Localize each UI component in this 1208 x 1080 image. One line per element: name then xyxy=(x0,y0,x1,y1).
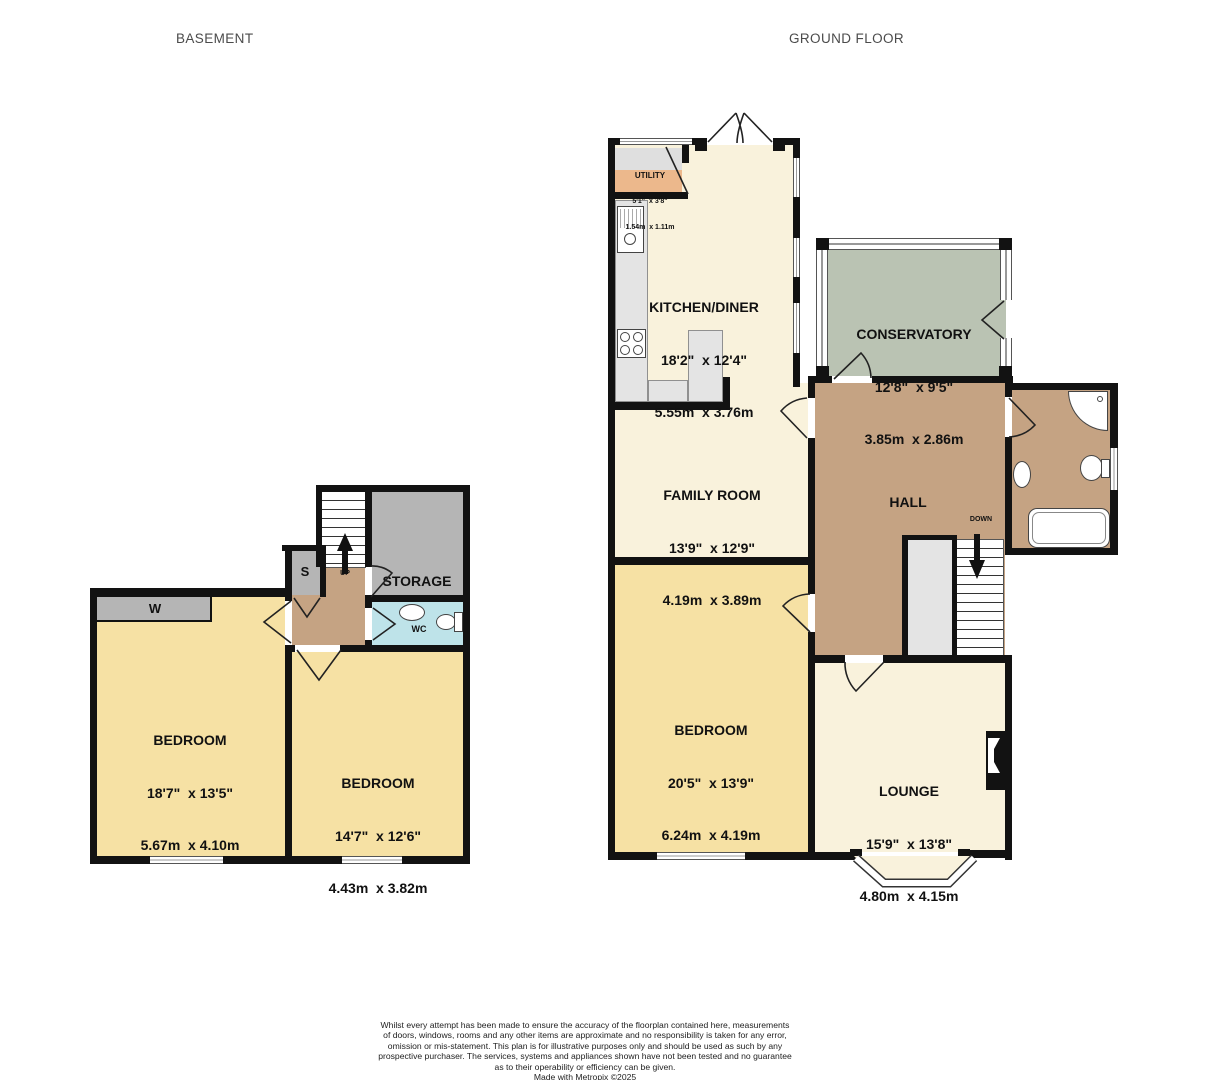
room-name: BEDROOM xyxy=(141,732,240,750)
room-name: BEDROOM xyxy=(329,775,428,793)
disclaimer-credit: Made with Metropix ©2025 xyxy=(365,1072,805,1080)
wall-segment xyxy=(1005,383,1118,390)
disclaimer-line: as to their operability or efficiency ca… xyxy=(365,1062,805,1072)
stairs-down xyxy=(957,540,1003,655)
wall-segment xyxy=(883,655,1012,663)
room-name: BEDROOM xyxy=(662,722,761,740)
wall-segment xyxy=(902,535,908,655)
room-name: FAMILY ROOM xyxy=(663,487,762,505)
room-label-basement-bedroom-2: BEDROOM 14'7" x 12'6" 4.43m x 3.82m xyxy=(329,740,428,933)
wall-segment xyxy=(1005,437,1012,555)
wall-corner xyxy=(958,849,970,860)
room-name: UTILITY xyxy=(625,172,674,181)
room-name: STORAGE xyxy=(383,573,452,591)
toilet-icon xyxy=(1080,455,1103,481)
faucet-icon xyxy=(1097,396,1103,402)
conservatory-window-wall xyxy=(816,238,828,378)
disclaimer: Whilst every attempt has been made to en… xyxy=(365,1020,805,1080)
stair-void xyxy=(908,540,952,655)
room-size-metric: 5.55m x 3.76m xyxy=(649,404,759,422)
window xyxy=(793,303,800,353)
stairs-up xyxy=(322,492,365,567)
wall-segment xyxy=(608,138,615,860)
room-name: KITCHEN/DINER xyxy=(649,299,759,317)
wall-segment xyxy=(90,588,97,864)
room-size-imperial: 18'2" x 12'4" xyxy=(649,352,759,370)
wall-corner xyxy=(816,366,829,378)
window xyxy=(793,238,800,277)
room-label-kitchen-diner: KITCHEN/DINER 18'2" x 12'4" 5.55m x 3.76… xyxy=(649,264,759,457)
conservatory-window-wall xyxy=(816,238,1012,250)
window xyxy=(620,138,692,145)
room-name: LOUNGE xyxy=(860,783,959,801)
room-size-imperial: 14'7" x 12'6" xyxy=(329,828,428,846)
toilet-cistern-icon xyxy=(1101,459,1110,478)
window xyxy=(793,158,800,197)
room-size-metric: 6.24m x 4.19m xyxy=(662,827,761,845)
wall-segment xyxy=(1005,383,1012,397)
wall-segment xyxy=(365,602,372,608)
room-label-family-room: FAMILY ROOM 13'9" x 12'9" 4.19m x 3.89m xyxy=(663,452,762,645)
room-size-metric: 4.43m x 3.82m xyxy=(329,880,428,898)
room-label-ground-bedroom: BEDROOM 20'5" x 13'9" 6.24m x 4.19m xyxy=(662,687,761,880)
room-label-conservatory: CONSERVATORY 12'8" x 9'5" 3.85m x 2.86m xyxy=(856,291,971,484)
room-size-imperial: 5'1" x 3'8" xyxy=(625,198,674,207)
wall-segment xyxy=(793,277,800,303)
room-size-metric: 4.80m x 4.15m xyxy=(860,888,959,906)
wall-segment xyxy=(808,383,815,398)
toilet-cistern-icon xyxy=(454,612,463,632)
stove-burner-icon xyxy=(620,345,630,355)
wall-segment xyxy=(1005,655,1012,860)
room-size-metric: 3.85m x 2.86m xyxy=(856,431,971,449)
room-size-imperial: 15'9" x 13'8" xyxy=(860,836,959,854)
up-label: UP xyxy=(340,570,350,577)
wall-segment xyxy=(340,645,470,652)
wall-segment xyxy=(793,197,800,238)
stove-burner-icon xyxy=(633,345,643,355)
wall-segment xyxy=(793,353,800,387)
disclaimer-line: prospective purchaser. The services, sys… xyxy=(365,1051,805,1061)
wall-segment xyxy=(608,852,657,860)
basin-icon xyxy=(1013,461,1031,488)
wall-segment xyxy=(285,645,292,856)
floorplan-canvas: BASEMENT GROUND FLOOR xyxy=(0,0,1208,1080)
wc-label: WC xyxy=(412,624,427,634)
down-label: DOWN xyxy=(970,516,992,523)
room-size-imperial: 20'5" x 13'9" xyxy=(662,775,761,793)
window xyxy=(1110,448,1118,490)
wall-segment xyxy=(1110,490,1118,555)
room-label-utility: UTILITY 5'1" x 3'8" 1.54m x 1.11m xyxy=(625,155,674,250)
wall-segment xyxy=(808,565,815,594)
wall-segment xyxy=(90,588,292,597)
wall-corner xyxy=(816,238,829,250)
disclaimer-line: of doors, windows, rooms and any other i… xyxy=(365,1030,805,1040)
room-size-imperial: 13'9" x 12'9" xyxy=(663,540,762,558)
wall-segment xyxy=(1110,383,1118,448)
wall-segment xyxy=(320,545,326,597)
wall-segment xyxy=(808,655,845,663)
wall-corner xyxy=(695,138,707,151)
wall-corner xyxy=(999,366,1012,378)
room-name: HALL xyxy=(889,494,926,512)
wall-segment xyxy=(365,492,372,567)
room-size-metric: 5.67m x 4.10m xyxy=(141,837,240,855)
wall-corner xyxy=(773,138,785,151)
bathtub-rim xyxy=(1032,512,1106,544)
room-label-lounge: LOUNGE 15'9" x 13'8" 4.80m x 4.15m xyxy=(860,748,959,941)
wall-segment xyxy=(1005,548,1118,555)
wardrobe-label: W xyxy=(149,601,161,616)
room-size-metric: 1.54m x 1.11m xyxy=(625,224,674,233)
wall-segment xyxy=(285,645,295,652)
room-size-imperial: 18'7" x 13'5" xyxy=(141,785,240,803)
room-label-storage: STORAGE xyxy=(383,538,452,626)
basement-title: BASEMENT xyxy=(176,31,253,46)
bathtub-icon xyxy=(1028,508,1110,548)
wall-segment xyxy=(463,485,470,864)
wall-corner xyxy=(999,238,1012,250)
ground-floor-title: GROUND FLOOR xyxy=(789,31,904,46)
room-size-metric: 4.19m x 3.89m xyxy=(663,592,762,610)
disclaimer-line: omission or mis-statement. This plan is … xyxy=(365,1041,805,1051)
wall-segment xyxy=(285,545,292,601)
disclaimer-line: Whilst every attempt has been made to en… xyxy=(365,1020,805,1030)
stove-burner-icon xyxy=(620,332,630,342)
stove-burner-icon xyxy=(633,332,643,342)
wall-segment xyxy=(952,540,957,655)
room-label-basement-bedroom-1: BEDROOM 18'7" x 13'5" 5.67m x 4.10m xyxy=(141,697,240,890)
wall-segment xyxy=(808,438,815,557)
room-size-imperial: 12'8" x 9'5" xyxy=(856,379,971,397)
wall-segment xyxy=(808,632,815,852)
wall-segment xyxy=(793,138,800,158)
room-label-hall: HALL xyxy=(889,459,926,547)
room-name: CONSERVATORY xyxy=(856,326,971,344)
wall-segment xyxy=(316,485,470,492)
wall-segment xyxy=(682,145,689,163)
cupboard-label: S xyxy=(301,564,310,579)
